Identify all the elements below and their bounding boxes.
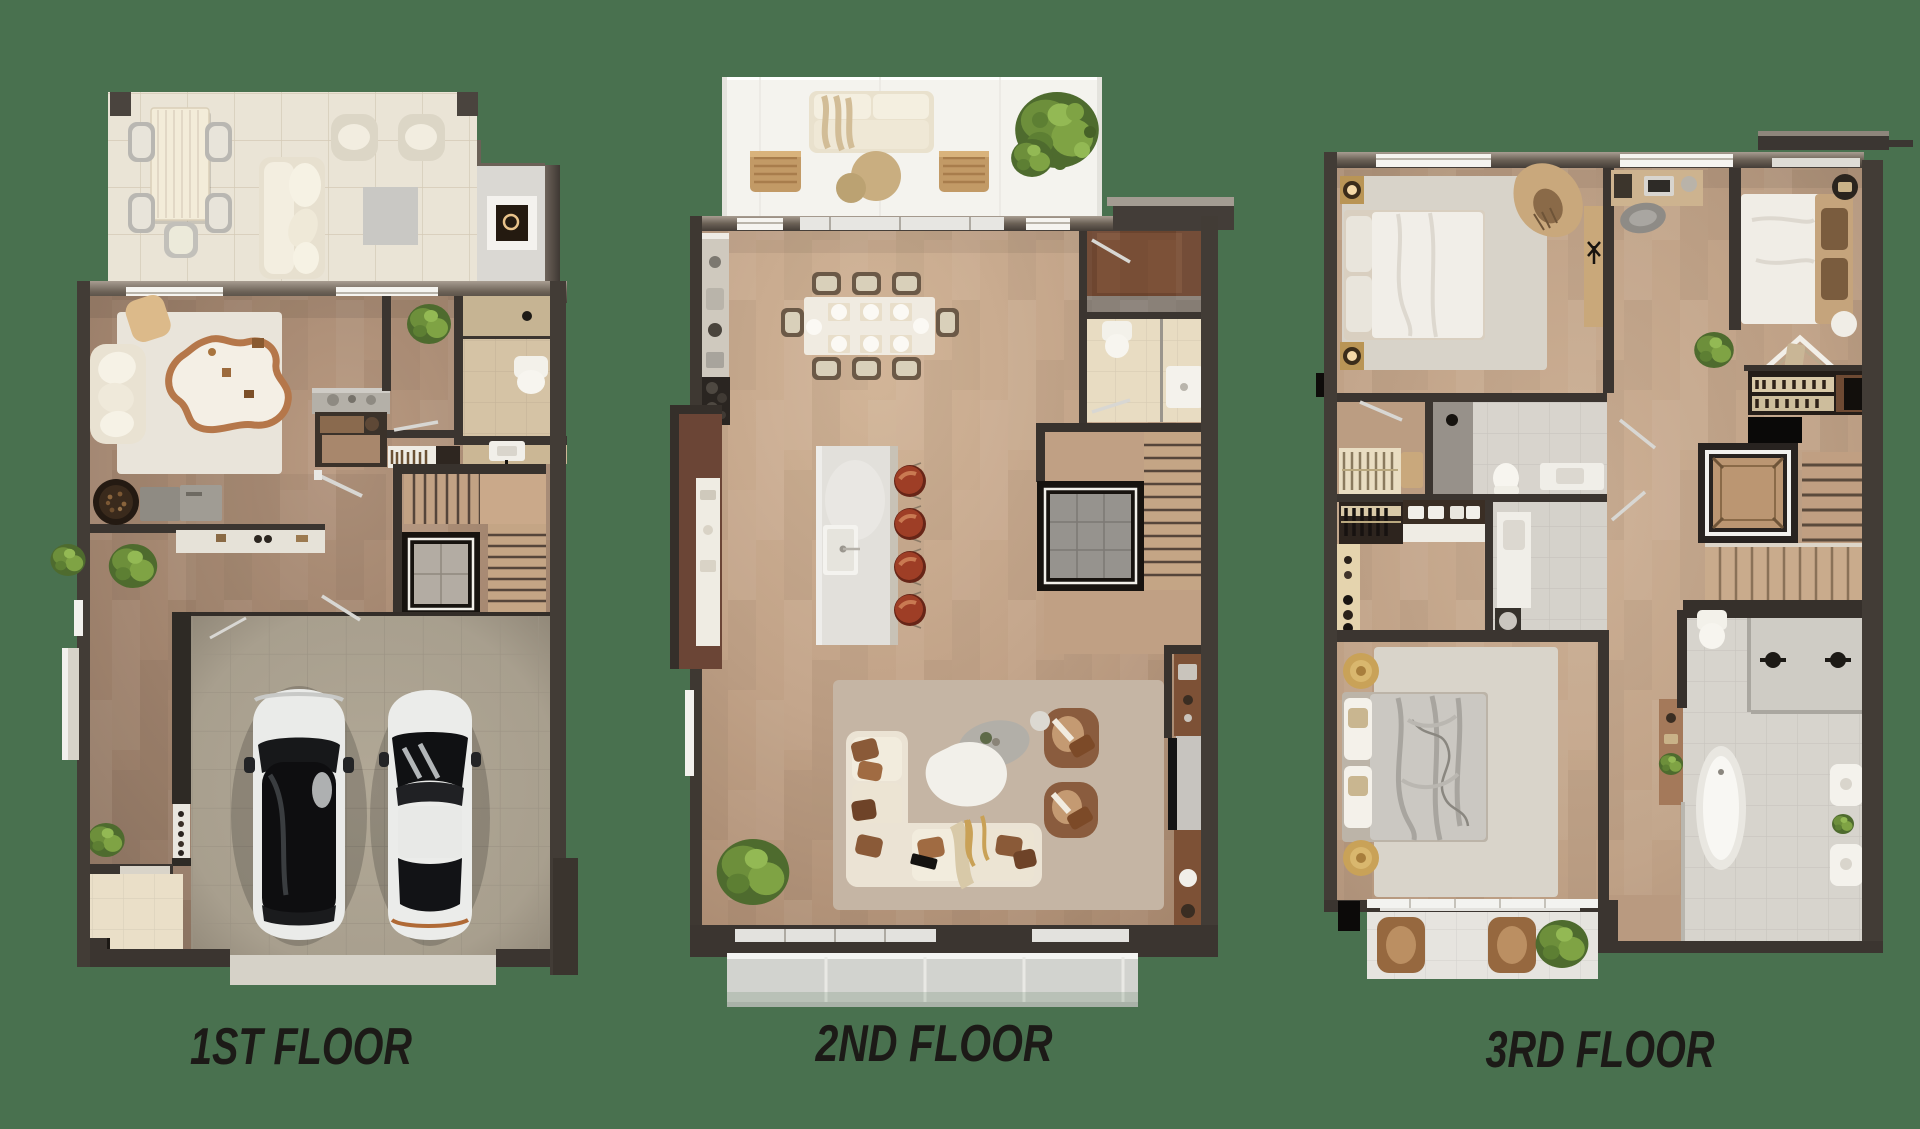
- svg-text:1ST FLOOR: 1ST FLOOR: [190, 1018, 412, 1076]
- svg-text:3RD FLOOR: 3RD FLOOR: [1486, 1021, 1715, 1079]
- svg-text:2ND FLOOR: 2ND FLOOR: [815, 1015, 1053, 1073]
